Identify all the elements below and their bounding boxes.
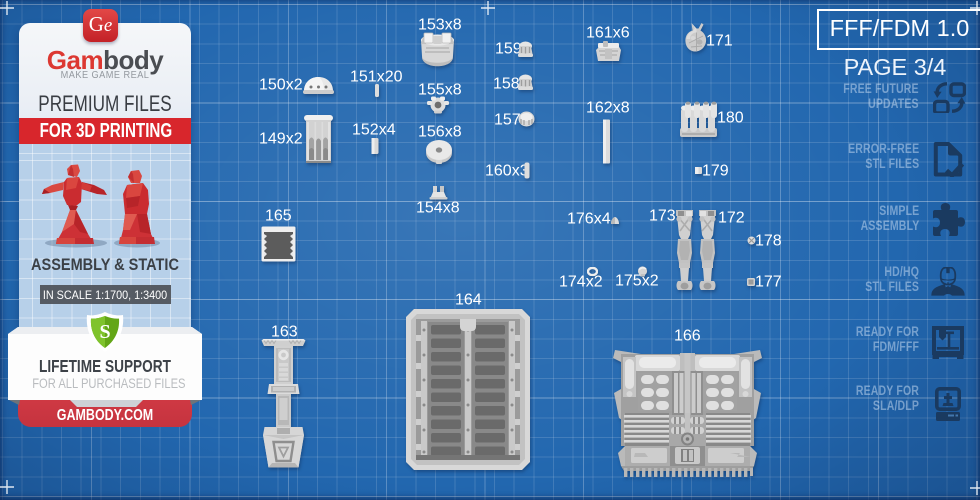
svg-text:S: S [99, 321, 110, 343]
